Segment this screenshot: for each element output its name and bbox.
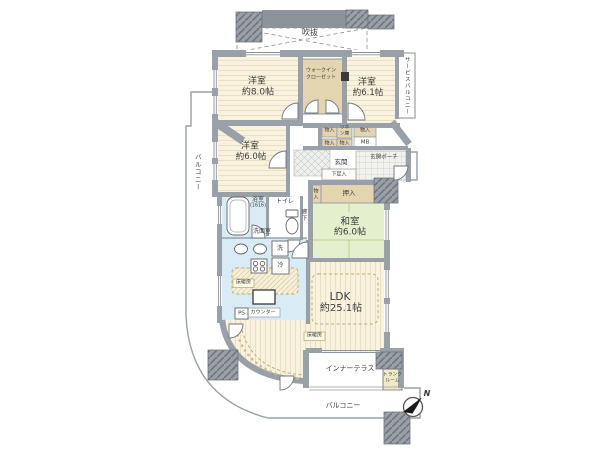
label-inner-terrace: インナーテラス <box>326 366 375 373</box>
label-storage-4: 物入 <box>339 142 349 147</box>
label-bedroom3-name: 洋室 <box>241 143 259 152</box>
label-bedroom1-name: 洋室 <box>248 78 266 87</box>
label-meter-box: MB <box>361 140 370 146</box>
door-balcony-2 <box>280 376 294 390</box>
label-oshiire: 押入 <box>343 190 356 197</box>
label-washer: 洗 <box>277 246 283 252</box>
column-bottom-left <box>208 350 238 380</box>
label-trunk-line2: ルーム <box>385 380 399 385</box>
toilet-bowl <box>286 218 298 234</box>
label-bedroom3-size: 約6.0帖 <box>236 153 267 162</box>
label-floor-heating-2: 床暖房 <box>307 334 322 339</box>
label-japanese-room: 和室 <box>340 217 359 227</box>
compass-icon <box>403 398 423 417</box>
label-atrium: 吹抜 <box>302 29 318 37</box>
sink-2 <box>254 244 267 254</box>
column-top-right <box>368 15 394 29</box>
column-porch <box>374 178 398 203</box>
toilet-tank <box>286 210 298 217</box>
label-storage-1: 物入 <box>324 129 334 134</box>
label-fridge: 冷 <box>277 263 283 269</box>
label-bathroom-size: (1616) <box>250 205 266 210</box>
label-counter: カウンター <box>250 310 275 315</box>
pillar-marker <box>341 72 349 81</box>
label-hallway: 廊下 <box>300 209 306 222</box>
label-balcony-bottom: バルコニー <box>326 403 361 410</box>
label-bedroom2-size: 約6.1帖 <box>353 89 384 98</box>
column-top-mid <box>346 10 368 28</box>
label-service-balcony: サービスバルコニー <box>403 57 409 116</box>
label-entrance-porch: 玄関ポーチ <box>370 155 398 161</box>
label-storage-3: 物入 <box>324 142 334 147</box>
label-storage-5: 物入 <box>313 188 318 200</box>
label-japanese-room-size: 約6.0帖 <box>334 229 366 238</box>
label-floor-heating-1: 床暖房 <box>236 281 251 286</box>
label-toilet: トイレ <box>276 199 294 205</box>
label-north: N <box>424 390 431 398</box>
label-washroom: 洗面室 <box>253 229 271 235</box>
label-pipe-space: PS <box>238 311 245 317</box>
label-bedroom2-name: 洋室 <box>358 79 376 88</box>
label-storage-2: 物入 <box>360 129 370 134</box>
floorplan-canvas: 吹抜 洋室 約8.0帖 ウォークイン クローゼット 洋室 約6.1帖 サービスバ… <box>0 0 600 450</box>
label-balcony-left: バルコニー <box>194 153 201 191</box>
label-ldk: LDK <box>330 292 351 303</box>
column-terrace-right <box>376 352 402 369</box>
label-bathroom: 浴室 <box>252 197 264 203</box>
label-wic-line1: ウォークイン <box>306 69 336 74</box>
label-ldk-size: 約25.1帖 <box>320 304 362 314</box>
label-bedroom1-size: 約8.0帖 <box>242 89 274 98</box>
label-wic-line2: クローゼット <box>306 76 336 81</box>
label-linen-line2: ン庫 <box>340 132 350 137</box>
label-shoe-cabinet: 下足入 <box>331 172 346 177</box>
column-bottom-right <box>384 412 410 444</box>
floorplan-svg <box>0 0 600 450</box>
sink-1 <box>235 244 248 254</box>
kitchen-island <box>253 290 275 304</box>
column-top-left <box>236 12 262 42</box>
stove <box>251 259 267 273</box>
label-entrance: 玄関 <box>335 159 348 166</box>
